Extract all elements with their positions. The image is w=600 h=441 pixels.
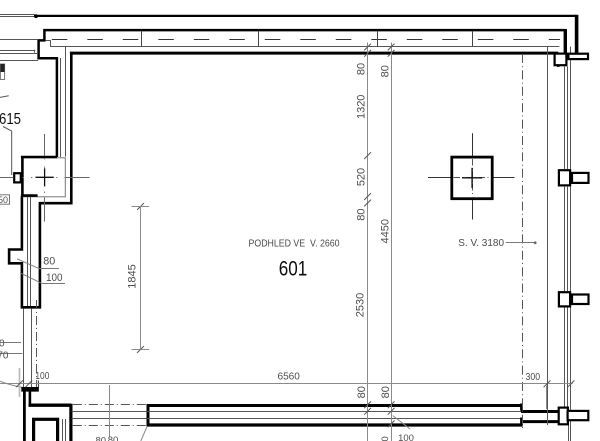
svg-text:80: 80 bbox=[379, 65, 391, 77]
svg-text:4450: 4450 bbox=[379, 219, 391, 243]
svg-text:1320: 1320 bbox=[355, 95, 367, 119]
svg-text:601: 601 bbox=[279, 256, 308, 280]
svg-text:80: 80 bbox=[355, 208, 367, 220]
svg-text:520: 520 bbox=[355, 168, 367, 186]
svg-text:80: 80 bbox=[380, 436, 391, 441]
svg-text:100: 100 bbox=[398, 433, 414, 441]
svg-text:80: 80 bbox=[43, 256, 55, 268]
svg-text:100: 100 bbox=[46, 272, 63, 284]
svg-text:80: 80 bbox=[108, 435, 119, 441]
svg-text:300: 300 bbox=[526, 371, 541, 383]
svg-text:6560: 6560 bbox=[277, 371, 300, 383]
svg-text:2530: 2530 bbox=[355, 293, 367, 317]
svg-text:80: 80 bbox=[356, 386, 368, 398]
svg-text:80: 80 bbox=[355, 63, 367, 75]
svg-text:80: 80 bbox=[380, 386, 392, 398]
svg-text:615: 615 bbox=[0, 111, 21, 128]
svg-text:1845: 1845 bbox=[127, 264, 139, 288]
svg-text:50: 50 bbox=[0, 195, 8, 205]
svg-text:PODHLED VE V. 2660: PODHLED VE V. 2660 bbox=[249, 239, 340, 250]
svg-text:70: 70 bbox=[0, 350, 9, 361]
svg-text:100: 100 bbox=[35, 370, 49, 382]
svg-text:80: 80 bbox=[96, 436, 107, 441]
svg-text:0: 0 bbox=[0, 339, 5, 350]
svg-text:S. V. 3180: S. V. 3180 bbox=[458, 238, 504, 249]
